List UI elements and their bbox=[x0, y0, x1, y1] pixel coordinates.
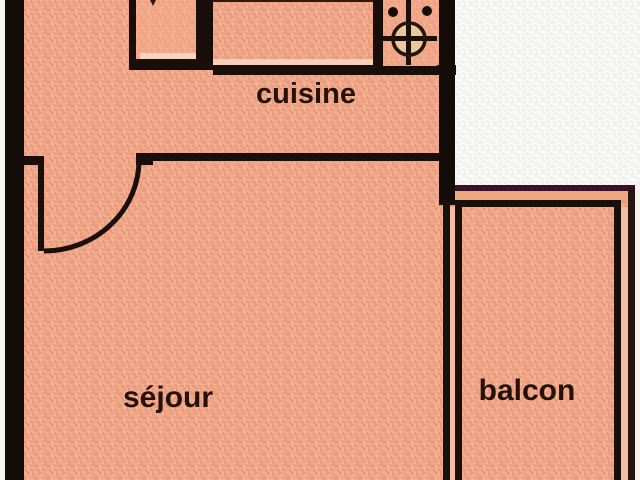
svg-text:balcon: balcon bbox=[479, 374, 576, 407]
svg-text:cuisine: cuisine bbox=[256, 78, 356, 110]
svg-text:séjour: séjour bbox=[123, 381, 213, 414]
